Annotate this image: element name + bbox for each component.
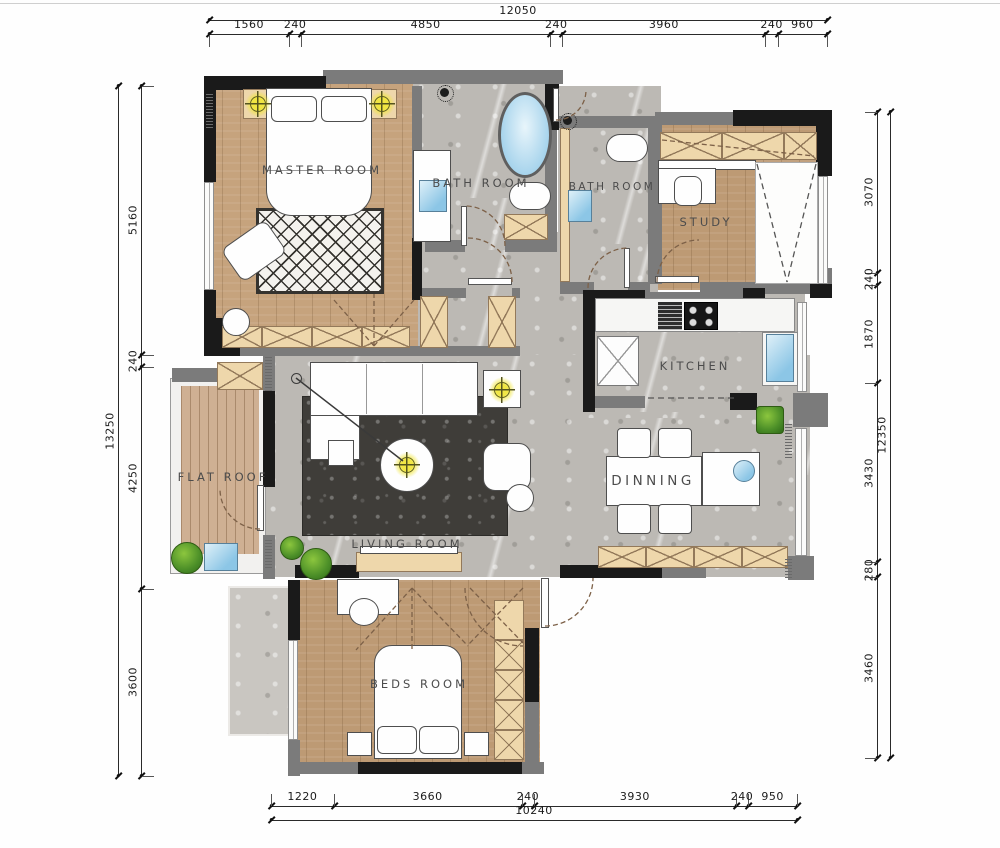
wall-segment (525, 700, 539, 762)
door-leaf (461, 206, 467, 246)
sofa-main (310, 362, 478, 416)
closet-cabinet (420, 296, 448, 348)
dim-total-label: 13250 (104, 412, 117, 450)
room-label-bath2: BATH ROOM (569, 181, 656, 193)
room-label-master: MASTER ROOM (262, 163, 382, 177)
wall-segment (323, 70, 563, 84)
plant (300, 548, 332, 580)
dim-segment-label: 240 (760, 18, 783, 31)
dim-tick (268, 816, 275, 823)
dim-extension (142, 589, 154, 590)
door-arc (545, 578, 593, 626)
study-closet (755, 162, 818, 284)
door-leaf (468, 278, 512, 285)
dim-extension (797, 794, 798, 806)
shower-head-icon (440, 88, 449, 97)
dim-segment-label: 3960 (649, 18, 679, 31)
stove-burners (684, 302, 718, 330)
wardrobe-cell (362, 326, 410, 348)
insulation-mark (785, 424, 792, 458)
dim-tick (794, 816, 801, 823)
dim-total-label: 12050 (499, 4, 537, 17)
dim-segment-label: 240 (731, 790, 754, 803)
dim-extension (271, 794, 272, 806)
dim-extension (865, 112, 877, 113)
ceiling-light-icon (245, 91, 271, 117)
room-label-dinning: DINNING (611, 473, 695, 489)
wall-segment (793, 393, 828, 427)
floor-plan-canvas: MASTER ROOM BATH ROOM BATH ROOM STUDY KI… (0, 0, 1000, 848)
door-leaf (655, 276, 699, 283)
insulation-mark (206, 92, 213, 128)
wall-segment (583, 300, 595, 412)
window (204, 182, 214, 290)
dim-tick (887, 754, 894, 761)
dim-extension (865, 383, 877, 384)
dim-segment-label: 960 (791, 18, 814, 31)
dim-tick (115, 772, 122, 779)
dim-segment-label: 4850 (411, 18, 441, 31)
bath-counter (504, 214, 548, 240)
kettle (733, 460, 755, 482)
dim-extension (209, 35, 210, 47)
bath2-basin (568, 190, 592, 222)
dim-line-left: 516024042503600 (141, 86, 142, 776)
insulation-mark (265, 538, 272, 568)
room-label-bath1: BATH ROOM (432, 176, 529, 190)
wall-segment (358, 762, 522, 774)
wall-segment (810, 284, 832, 298)
beds-wardrobe-cell (494, 700, 524, 730)
shower-head-icon (563, 116, 572, 125)
study-wardrobe-cell (722, 132, 784, 160)
dim-segment-label: 280 (863, 558, 876, 581)
dim-extension (550, 35, 551, 47)
storage-box (217, 362, 263, 390)
door-leaf (553, 88, 559, 122)
nightstand (464, 732, 489, 756)
dim-segment-label: 240 (863, 268, 876, 291)
sofa-seam (422, 364, 423, 414)
plant (756, 406, 784, 434)
beds-wardrobe-top (494, 600, 524, 640)
dining-chair (658, 428, 692, 458)
wall-segment (288, 580, 300, 640)
stove-grill (658, 302, 682, 330)
sideboard-cell (598, 546, 646, 568)
sofa-armrest (328, 440, 354, 466)
dining-chair (658, 504, 692, 534)
wall-segment (288, 762, 360, 774)
window (795, 428, 807, 556)
room-label-living: LIVING ROOM (351, 537, 462, 551)
dim-segment-label: 3430 (863, 458, 876, 488)
pillow (419, 726, 459, 754)
wall-segment (595, 396, 645, 408)
dim-segment-label: 1560 (234, 18, 264, 31)
dim-tick (887, 108, 894, 115)
sideboard-cell (694, 546, 742, 568)
wall-segment (505, 240, 557, 252)
wardrobe-cell (312, 326, 362, 348)
wall-segment (412, 238, 422, 300)
ceiling-light-icon (394, 452, 420, 478)
plant (171, 542, 203, 574)
pillow (321, 96, 367, 122)
wall-segment (520, 762, 544, 774)
study-wardrobe-cell (784, 132, 817, 160)
dim-segment-label: 3600 (127, 667, 140, 697)
dining-chair (617, 428, 651, 458)
dim-segment-label: 1870 (863, 319, 876, 349)
dim-segment-label: 3660 (413, 790, 443, 803)
wardrobe-cell (262, 326, 312, 348)
dim-extension (289, 35, 290, 47)
dim-extension (301, 35, 302, 47)
room-label-study: STUDY (680, 215, 733, 229)
sideboard-cell (742, 546, 788, 568)
tv-console (356, 552, 462, 572)
beds-wardrobe-cell (494, 670, 524, 700)
flat-roof-basin (204, 543, 238, 571)
kitchen-sink (766, 334, 794, 382)
wall-segment (730, 393, 757, 410)
toilet (606, 134, 648, 162)
dim-tick (115, 82, 122, 89)
dim-total-label: 12350 (876, 416, 889, 454)
pillow (377, 726, 417, 754)
dim-segment-label: 4250 (127, 463, 140, 493)
dim-segment-label: 3070 (863, 177, 876, 207)
dim-tick (206, 16, 213, 23)
dim-extension (142, 367, 154, 368)
dim-tick (824, 16, 831, 23)
ceiling-light-icon (489, 377, 515, 403)
dim-total-left: 13250 (118, 86, 119, 776)
dim-extension (142, 355, 154, 356)
door-leaf (624, 248, 630, 288)
beds-chair (349, 598, 379, 626)
window (818, 176, 828, 284)
wall-segment (525, 628, 539, 702)
dim-extension (827, 35, 828, 47)
window (797, 302, 807, 392)
room-label-flat-roof: FLAT ROOF (178, 470, 269, 484)
room-label-kitchen: KITCHEN (660, 359, 731, 373)
dim-segment-label: 3930 (620, 790, 650, 803)
insulation-mark (785, 558, 792, 578)
window (288, 640, 298, 740)
dim-extension (142, 86, 154, 87)
dim-segment-label: 240 (545, 18, 568, 31)
sideboard-cell (646, 546, 694, 568)
door-leaf (257, 485, 264, 531)
dim-segment-label: 5160 (127, 205, 140, 235)
ceiling-light-icon (369, 91, 395, 117)
dim-extension (865, 758, 877, 759)
closet-cabinet (488, 296, 516, 348)
nightstand (347, 732, 372, 756)
dim-segment-label: 240 (284, 18, 307, 31)
dim-line-top: 156024048502403960240960 (209, 34, 827, 35)
room-label-beds: BEDS ROOM (370, 677, 468, 691)
sofa-seam (366, 364, 367, 414)
ac-platform (228, 586, 290, 736)
plant (280, 536, 304, 560)
dim-segment-label: 240 (517, 790, 540, 803)
dim-extension (334, 794, 335, 806)
dim-segment-label: 950 (761, 790, 784, 803)
dim-total-right: 12350 (890, 112, 891, 758)
dim-segment-label: 240 (127, 350, 140, 373)
dim-extension (562, 35, 563, 47)
wall-segment (816, 110, 832, 176)
insulation-mark (265, 357, 272, 391)
dim-segment-label: 1220 (287, 790, 317, 803)
dim-extension (142, 776, 154, 777)
wall-segment (655, 112, 735, 125)
ottoman (506, 484, 534, 512)
dim-segment-label: 3460 (863, 653, 876, 683)
dim-total-label: 10240 (515, 804, 553, 817)
beds-wardrobe-cell (494, 730, 524, 760)
dim-total-bottom: 10240 (271, 820, 797, 821)
pendant-hook (291, 373, 302, 384)
dim-extension (778, 35, 779, 47)
door-leaf (541, 578, 549, 628)
corner-shelf (222, 308, 250, 336)
study-wardrobe-cell (660, 132, 722, 160)
bathtub (498, 92, 552, 178)
beds-wardrobe-cell (494, 640, 524, 670)
pillow (271, 96, 317, 122)
dining-chair (617, 504, 651, 534)
study-chair (674, 176, 702, 206)
dim-extension (765, 35, 766, 47)
fridge (597, 336, 639, 386)
